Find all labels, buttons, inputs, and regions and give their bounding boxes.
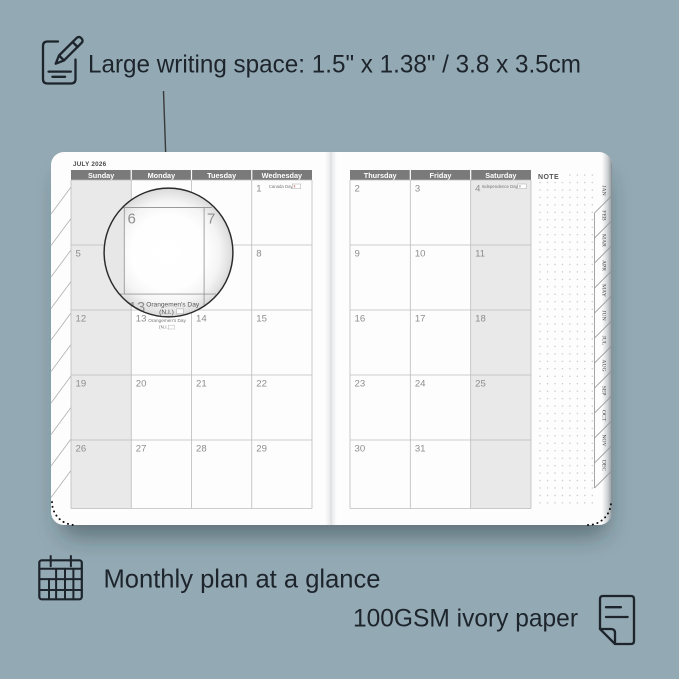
- svg-text:16: 16: [355, 314, 366, 325]
- svg-text:MAY: MAY: [601, 284, 607, 297]
- svg-text:19: 19: [76, 379, 87, 390]
- svg-text:7: 7: [207, 211, 215, 228]
- svg-text:18: 18: [475, 314, 486, 325]
- svg-text:OCT: OCT: [601, 410, 607, 422]
- svg-text:14: 14: [196, 314, 207, 325]
- svg-text:AUG: AUG: [601, 359, 607, 371]
- svg-text:26: 26: [76, 444, 87, 455]
- svg-text:10: 10: [415, 249, 426, 260]
- svg-text:25: 25: [475, 379, 486, 390]
- svg-text:24: 24: [415, 379, 426, 390]
- svg-text:30: 30: [355, 444, 366, 455]
- svg-text:JULY 2026: JULY 2026: [73, 161, 107, 168]
- svg-text:Friday: Friday: [430, 171, 453, 180]
- svg-text:13: 13: [136, 314, 147, 325]
- svg-text:FEB: FEB: [601, 210, 607, 221]
- svg-text:5: 5: [76, 249, 81, 260]
- svg-text:NOV: NOV: [601, 434, 607, 447]
- svg-text:APR: APR: [601, 260, 607, 271]
- svg-text:22: 22: [256, 379, 267, 390]
- svg-text:Thursday: Thursday: [364, 171, 398, 180]
- svg-text:27: 27: [136, 444, 147, 455]
- svg-text:1: 1: [256, 184, 261, 195]
- svg-text:15: 15: [256, 314, 267, 325]
- svg-text:2: 2: [355, 184, 360, 195]
- svg-text:100GSM ivory paper: 100GSM ivory paper: [353, 604, 578, 632]
- svg-text:Tuesday: Tuesday: [207, 171, 237, 180]
- svg-text:Monday: Monday: [148, 171, 177, 180]
- svg-text:28: 28: [196, 444, 207, 455]
- svg-text:JAN: JAN: [601, 185, 607, 195]
- svg-text:NOTE: NOTE: [538, 174, 559, 181]
- svg-text:JUL: JUL: [601, 336, 607, 346]
- svg-text:Orangemen's Day: Orangemen's Day: [148, 318, 186, 323]
- svg-text:31: 31: [415, 444, 426, 455]
- svg-text:JUN: JUN: [601, 310, 607, 320]
- svg-text:8: 8: [256, 249, 261, 260]
- svg-text:20: 20: [136, 379, 147, 390]
- svg-text:11: 11: [475, 249, 485, 260]
- svg-text:17: 17: [415, 314, 426, 325]
- svg-text:23: 23: [355, 379, 366, 390]
- svg-text:(N.I.): (N.I.): [159, 309, 174, 316]
- svg-text:SEP: SEP: [601, 386, 607, 396]
- svg-text:Sunday: Sunday: [88, 171, 115, 180]
- svg-text:Orangemen's Day: Orangemen's Day: [146, 302, 200, 309]
- svg-text:MAR: MAR: [601, 234, 607, 247]
- svg-text:3: 3: [415, 184, 420, 195]
- svg-text:9: 9: [355, 249, 360, 260]
- svg-text:Canada Day: Canada Day: [269, 184, 294, 189]
- svg-text:Independence Day: Independence Day: [482, 184, 519, 189]
- svg-text:4: 4: [475, 184, 481, 195]
- svg-text:Wednesday: Wednesday: [262, 171, 303, 180]
- svg-text:DEC: DEC: [601, 460, 607, 472]
- svg-text:12: 12: [76, 314, 87, 325]
- svg-text:6: 6: [128, 211, 136, 228]
- svg-text:29: 29: [256, 444, 267, 455]
- svg-text:Monthly plan at a glance: Monthly plan at a glance: [104, 564, 381, 594]
- svg-text:Saturday: Saturday: [485, 171, 517, 180]
- svg-text:21: 21: [196, 379, 207, 390]
- svg-text:Large writing space: 1.5" x 1.: Large writing space: 1.5" x 1.38" / 3.8 …: [88, 50, 581, 78]
